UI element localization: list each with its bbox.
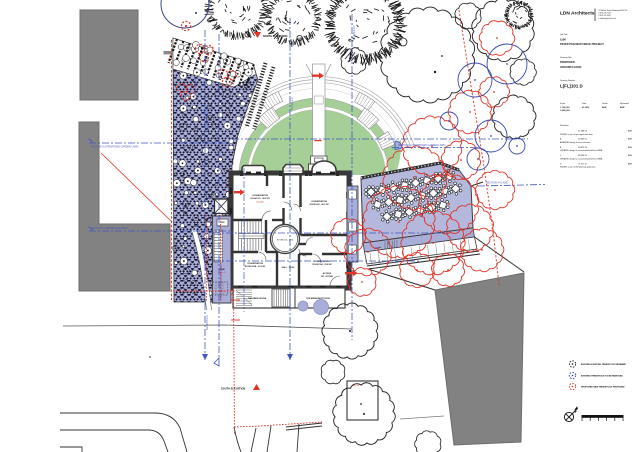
svg-text:Drawing Number: Drawing Number	[560, 80, 575, 82]
svg-text:SECTION 3-3 PROPOSED GARDEN LA: SECTION 3-3 PROPOSED GARDEN LAWN	[91, 146, 139, 149]
svg-text:ROOM 003 - 18 M: ROOM 003 - 18 M	[277, 240, 294, 242]
svg-text:Reviewed: Reviewed	[620, 103, 629, 105]
svg-text:AHN: AHN	[620, 106, 625, 109]
svg-text:AHN: AHN	[628, 138, 633, 141]
svg-text:PROPOSED GARDEN: PROPOSED GARDEN	[206, 105, 209, 130]
svg-text:GROUND FLOOR: GROUND FLOOR	[560, 65, 581, 69]
svg-text:ROOM 004 - 25.8 M2: ROOM 004 - 25.8 M2	[312, 263, 332, 266]
svg-text:ACCESS: ACCESS	[323, 272, 332, 275]
svg-text:e edinburgh@ldn.co.uk: e edinburgh@ldn.co.uk	[599, 17, 617, 20]
svg-text:57 Melville Street, Edinburgh: 57 Melville Street, Edinburgh EH3 7HL	[599, 9, 628, 12]
svg-text:1:200@A3: 1:200@A3	[560, 109, 571, 112]
svg-text:CIRC: CIRC	[220, 222, 225, 224]
svg-text:AHN: AHN	[628, 162, 633, 165]
svg-text:EXISTING TREE/STOCK TO BE REMO: EXISTING TREE/STOCK TO BE REMOVED	[581, 376, 623, 378]
svg-text:ISSUED as part of full plannin: ISSUED as part of full planning applicat…	[560, 166, 596, 169]
svg-text:AHN: AHN	[602, 106, 607, 109]
svg-text:AHN: AHN	[628, 146, 633, 149]
svg-text:Drawing Title: Drawing Title	[560, 56, 572, 59]
svg-text:CONSERVATION: CONSERVATION	[314, 260, 330, 263]
svg-text:17 JUL 16: 17 JUL 16	[578, 163, 587, 165]
svg-text:03 APR 16: 03 APR 16	[578, 146, 587, 149]
svg-text:3-3 DBLE C: 3-3 DBLE C	[291, 97, 294, 110]
svg-text:HALL - 10 M2: HALL - 10 M2	[282, 266, 296, 269]
svg-text:SECTION 2-2: SECTION 2-2	[206, 315, 209, 330]
svg-text:ROOM 002 - 40.1 M2: ROOM 002 - 40.1 M2	[309, 203, 329, 206]
svg-text:09 MAY 16: 09 MAY 16	[578, 154, 587, 157]
svg-text:NORTH ELEVATION: NORTH ELEVATION	[263, 34, 288, 38]
svg-text:L(FL)101 D: L(FL)101 D	[560, 84, 583, 89]
svg-text:PROPOSED: PROPOSED	[560, 60, 575, 64]
svg-text:CONSERVATION: CONSERVATION	[311, 200, 327, 203]
svg-text:Scale: Scale	[560, 103, 566, 105]
svg-text:ROOM 005A - 19.5 M2: ROOM 005A - 19.5 M2	[245, 265, 266, 268]
svg-text:SECTION 2-2 PROPOSED GARDEN LA: SECTION 2-2 PROPOSED GARDEN LAWN	[398, 144, 446, 147]
svg-text:UPDATED design to revised deta: UPDATED design to revised detail brief f…	[560, 157, 603, 160]
svg-text:WC / STORE: WC / STORE	[321, 276, 334, 278]
svg-text:01.2016: 01.2016	[582, 107, 590, 109]
svg-text:Drawn: Drawn	[602, 103, 608, 105]
svg-text:CONSERVATION: CONSERVATION	[247, 262, 263, 265]
svg-text:THE BREW HOUSE: THE BREW HOUSE	[248, 298, 267, 300]
svg-text:PROPOSED NEW TREE/STOCK PROPOS: PROPOSED NEW TREE/STOCK PROPOSED	[581, 387, 625, 389]
svg-text:1506: 1506	[560, 38, 566, 42]
svg-text:PETER PAN MOAT BRAE PROJECT: PETER PAN MOAT BRAE PROJECT	[560, 42, 604, 46]
svg-text:ISSUED as part of pre-applicat: ISSUED as part of pre-application form	[560, 133, 593, 136]
svg-text:SOUTH ELEVATION: SOUTH ELEVATION	[221, 387, 245, 391]
svg-text:UPDATED design to revised deta: UPDATED design to revised detail brief f…	[560, 149, 603, 152]
svg-text:Revisions: Revisions	[560, 125, 569, 127]
svg-text:ROOM 001 - 45.2 M2: ROOM 001 - 45.2 M2	[250, 197, 270, 200]
svg-text:CL 23.5: CL 23.5	[256, 202, 264, 204]
svg-text:LDN Architects: LDN Architects	[560, 11, 595, 17]
svg-text:3-3 DBLE CC: 3-3 DBLE CC	[353, 25, 356, 40]
svg-text:SECTION 1-1 WOODLAND WALK: SECTION 1-1 WOODLAND WALK	[91, 227, 128, 230]
svg-text:t 0131 226 7126: t 0131 226 7126	[599, 12, 611, 15]
svg-text:Job Title: Job Title	[560, 33, 568, 36]
svg-text:1:100@A1: 1:100@A1	[560, 106, 571, 109]
svg-text:SECTION 4-4 LANE: SECTION 4-4 LANE	[486, 182, 508, 185]
svg-text:AA INFANT GARDEN: AA INFANT GARDEN	[194, 77, 197, 100]
svg-text:AHN: AHN	[628, 154, 633, 157]
svg-text:AHN: AHN	[628, 130, 633, 133]
svg-text:31 JAN 14: 31 JAN 14	[578, 130, 587, 133]
svg-text:AMENDED design to east extensi: AMENDED design to east extension	[560, 141, 590, 144]
svg-text:CONSERVATION: CONSERVATION	[252, 194, 268, 197]
svg-text:22 MAY 15: 22 MAY 15	[578, 138, 587, 141]
svg-text:EXISTING EXISTING TREE/STOCK R: EXISTING EXISTING TREE/STOCK RETAINED	[581, 363, 626, 366]
svg-text:THE BREAKFAST ROOM: THE BREAKFAST ROOM	[306, 297, 330, 300]
